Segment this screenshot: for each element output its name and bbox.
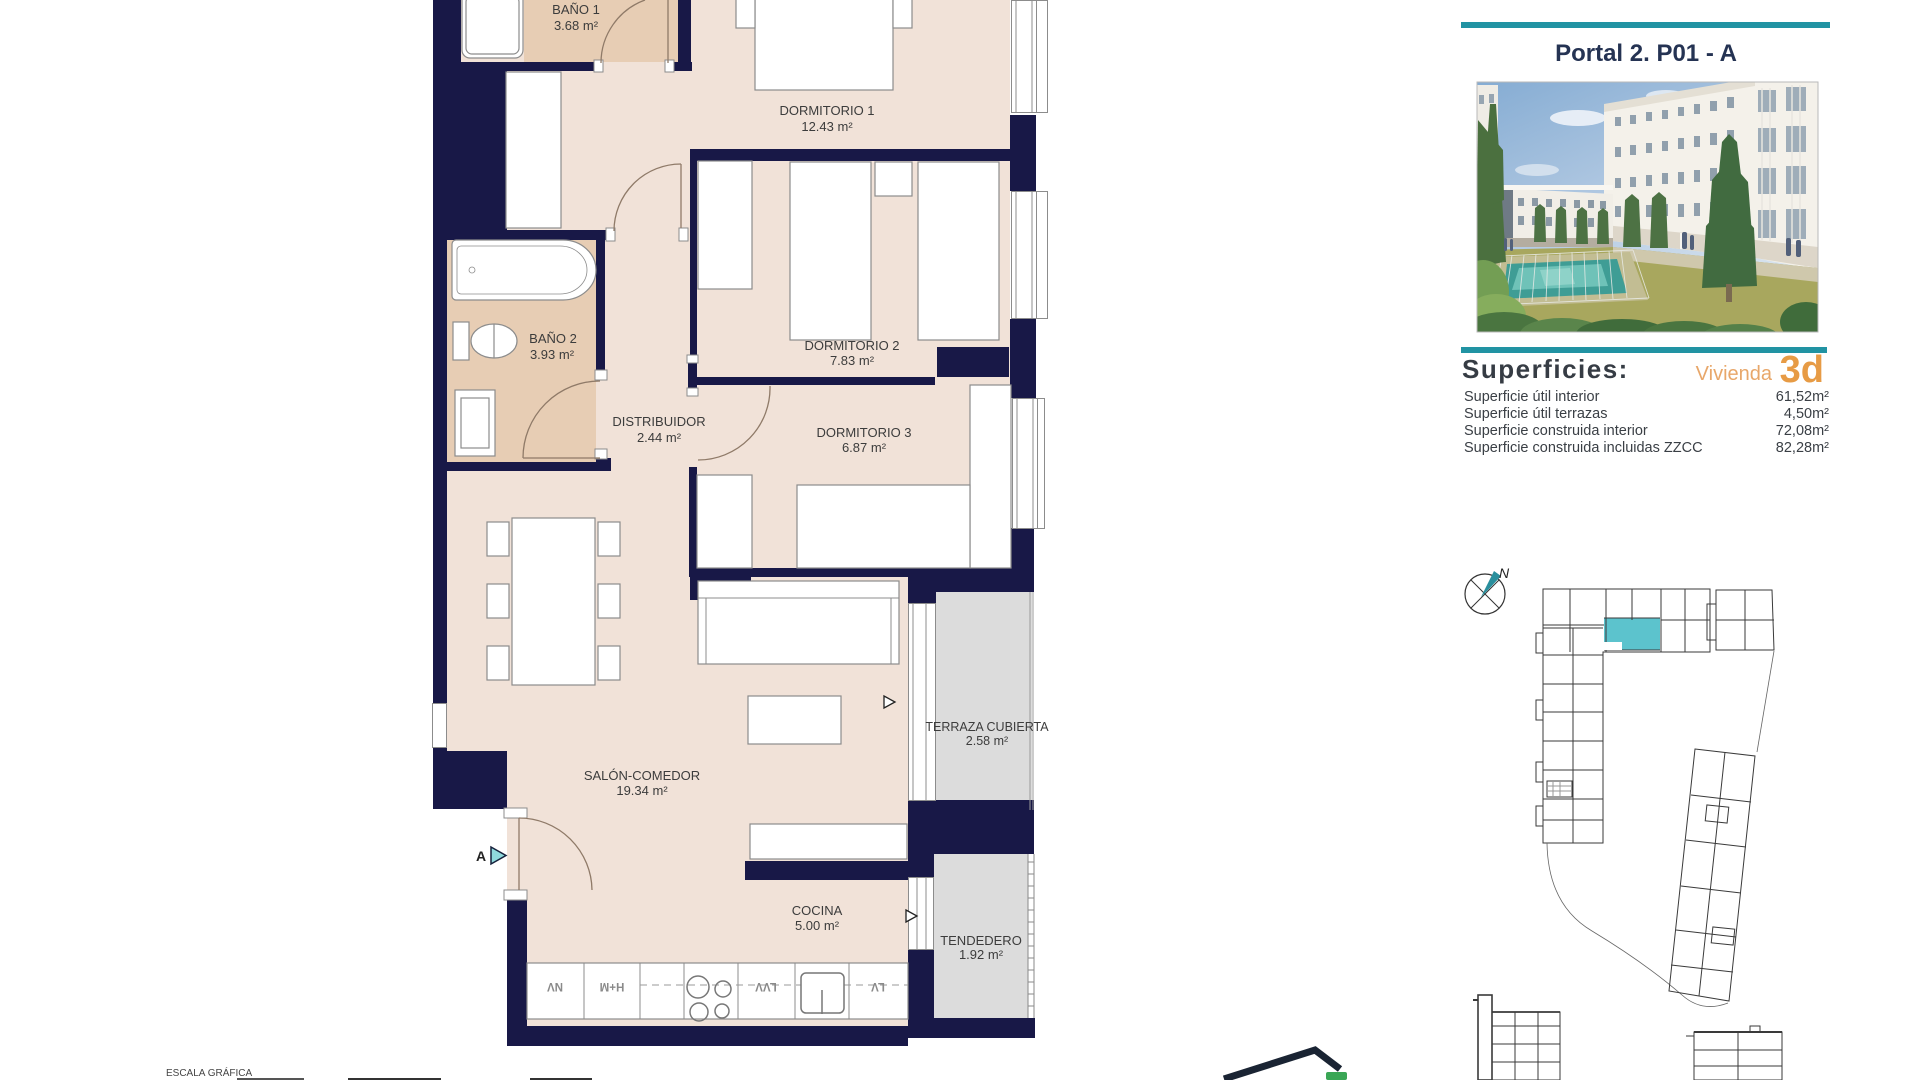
svg-text:61,52m²: 61,52m² [1776, 389, 1829, 405]
svg-text:H+M: H+M [600, 980, 625, 992]
svg-text:3.93 m²: 3.93 m² [530, 347, 575, 362]
svg-text:3d: 3d [1780, 349, 1824, 391]
svg-text:NV: NV [547, 980, 563, 992]
svg-text:5.00 m²: 5.00 m² [795, 918, 840, 933]
svg-text:N: N [1499, 565, 1510, 581]
svg-text:DORMITORIO 3: DORMITORIO 3 [816, 425, 911, 440]
svg-text:82,28m²: 82,28m² [1776, 440, 1829, 456]
svg-text:Portal 2. P01 - A: Portal 2. P01 - A [1555, 40, 1737, 67]
svg-text:7.83 m²: 7.83 m² [830, 353, 875, 368]
svg-text:ESCALA GRÁFICA: ESCALA GRÁFICA [166, 1066, 252, 1079]
svg-text:SALÓN-COMEDOR: SALÓN-COMEDOR [584, 768, 700, 783]
svg-text:BAÑO 1: BAÑO 1 [552, 2, 600, 17]
svg-text:Superficie útil terrazas: Superficie útil terrazas [1464, 406, 1607, 422]
svg-text:2.44 m²: 2.44 m² [637, 430, 682, 445]
svg-text:19.34 m²: 19.34 m² [616, 783, 668, 798]
svg-text:BAÑO 2: BAÑO 2 [529, 331, 577, 346]
svg-text:DISTRIBUIDOR: DISTRIBUIDOR [612, 414, 705, 429]
svg-text:COCINA: COCINA [792, 903, 843, 918]
svg-text:DORMITORIO 1: DORMITORIO 1 [779, 103, 874, 118]
svg-text:12.43 m²: 12.43 m² [801, 119, 853, 134]
svg-text:LVV: LVV [755, 980, 777, 992]
svg-text:Superficies:: Superficies: [1462, 354, 1629, 384]
svg-text:3.68 m²: 3.68 m² [554, 18, 599, 33]
svg-text:Vivienda: Vivienda [1696, 363, 1773, 385]
svg-text:4,50m²: 4,50m² [1784, 406, 1829, 422]
svg-text:LV: LV [871, 980, 885, 992]
svg-text:TERRAZA CUBIERTA: TERRAZA CUBIERTA [925, 720, 1049, 734]
svg-text:2.58 m²: 2.58 m² [966, 734, 1008, 748]
svg-text:1.92 m²: 1.92 m² [959, 947, 1004, 962]
svg-text:TENDEDERO: TENDEDERO [940, 933, 1022, 948]
svg-text:DORMITORIO 2: DORMITORIO 2 [804, 338, 899, 353]
svg-text:A: A [476, 848, 486, 864]
svg-text:6.87 m²: 6.87 m² [842, 440, 887, 455]
svg-text:Superficie útil interior: Superficie útil interior [1464, 389, 1600, 405]
svg-text:Superficie construida incluida: Superficie construida incluidas ZZCC [1464, 440, 1703, 456]
svg-text:Superficie construida interior: Superficie construida interior [1464, 423, 1648, 439]
svg-text:72,08m²: 72,08m² [1776, 423, 1829, 439]
